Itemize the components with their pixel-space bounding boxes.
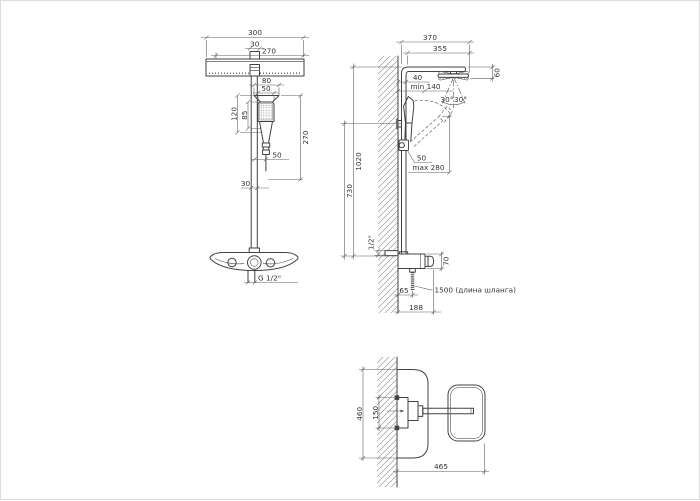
- front-handset-handle: [260, 122, 273, 144]
- front-knob-right: [266, 259, 274, 267]
- side-dim-65: 65: [399, 286, 408, 295]
- side-dim-60: 60: [493, 68, 502, 78]
- front-view: 300 30 270 80 50 120 85 270 50 30 G 1/2": [201, 28, 310, 285]
- front-dim-thread: G 1/2": [258, 273, 281, 282]
- front-dim-85: 85: [240, 111, 249, 120]
- top-dimensions: 460 150 465: [355, 367, 489, 475]
- top-inlet-arrow: [401, 410, 405, 413]
- side-dim-half-inch: 1/2": [367, 235, 376, 250]
- top-wall-hatch: [377, 357, 397, 487]
- front-outlet-stub: [248, 271, 255, 283]
- side-dim-355: 355: [433, 44, 447, 53]
- side-dim-70: 70: [442, 256, 451, 266]
- front-dim-270-handset: 270: [301, 130, 310, 144]
- side-dim-40: 40: [413, 73, 423, 82]
- front-dim-30-pipe: 30: [241, 179, 251, 188]
- top-dim-460: 460: [355, 406, 364, 420]
- front-knob-center: [248, 256, 262, 270]
- front-dim-50-hose: 50: [272, 150, 282, 159]
- top-wall-section: [377, 357, 397, 487]
- top-head-outer: [448, 385, 485, 441]
- side-tilt-left-label: 30°: [441, 95, 454, 104]
- front-shelf-contours: [215, 259, 293, 264]
- technical-drawing: 300 30 270 80 50 120 85 270 50 30 G 1/2": [1, 1, 700, 501]
- side-dim-730: 730: [345, 184, 354, 198]
- side-mixer-body: [398, 252, 434, 290]
- top-dim-465: 465: [434, 462, 448, 471]
- front-knob-center-inner: [251, 259, 259, 267]
- front-shelf-knobs: [228, 256, 275, 270]
- side-mixer-box: [398, 254, 425, 269]
- top-dim-150: 150: [371, 405, 380, 419]
- side-tilt-right-label: 30°: [454, 95, 467, 104]
- top-plate: [397, 398, 408, 429]
- front-hose-nut: [263, 150, 270, 155]
- front-dim-50: 50: [261, 84, 271, 93]
- top-bracket-step: [418, 406, 423, 417]
- side-dim-1020: 1020: [354, 152, 363, 171]
- front-knob-left: [228, 258, 236, 266]
- side-head-tilt-indicator: 30° 30°: [441, 77, 467, 108]
- front-riser-flange: [249, 248, 259, 253]
- drawing-canvas: 300 30 270 80 50 120 85 270 50 30 G 1/2": [0, 0, 700, 500]
- side-dim-min140: min 140: [410, 82, 440, 91]
- side-dim-188: 188: [409, 303, 423, 312]
- front-dim-270-head: 270: [262, 46, 276, 55]
- side-dim-max280: max 280: [412, 163, 445, 172]
- side-view: 30° 30° 370 355 40: [341, 33, 517, 315]
- side-handset-head: [404, 97, 414, 124]
- front-handset-band: [262, 143, 269, 147]
- side-riser-lines: [402, 74, 407, 255]
- side-head-slab: [438, 74, 469, 77]
- side-hand-shower-alt-position: [410, 100, 453, 146]
- front-rain-head: [206, 59, 304, 76]
- front-dim-30-arm: 30: [250, 39, 260, 48]
- side-dimensions: 370 355 40 min 140 60 1020 730 1/2" 50 m…: [341, 33, 517, 315]
- side-wall-section: [378, 56, 398, 313]
- front-riser-pipe: [249, 76, 259, 253]
- side-dim-50: 50: [417, 154, 427, 163]
- side-handset-swing-dashed: [410, 100, 453, 146]
- top-rain-head: [448, 385, 485, 441]
- side-rain-head: [438, 71, 469, 80]
- side-hose-note: 1500 (длина шланга): [435, 286, 517, 295]
- front-handset-face: [260, 104, 273, 120]
- front-shelf: [210, 253, 298, 271]
- side-handset-bracket: [399, 140, 409, 151]
- top-bracket-body: [408, 402, 418, 421]
- top-view: 460 150 465: [355, 357, 489, 487]
- top-head-inner: [451, 388, 483, 439]
- side-hose-nut: [410, 269, 416, 273]
- side-wall-hatch: [378, 56, 398, 313]
- side-supply-stub: [385, 251, 398, 256]
- side-mixer-knob: [425, 256, 434, 266]
- side-dim-370: 370: [423, 33, 437, 42]
- front-dim-300: 300: [248, 28, 262, 37]
- front-dim-120: 120: [230, 107, 239, 121]
- front-outlet-lines: [248, 271, 255, 283]
- front-hand-shower: [258, 102, 274, 171]
- side-supply-pipe: [385, 251, 398, 256]
- side-riser-pipe: [402, 74, 407, 255]
